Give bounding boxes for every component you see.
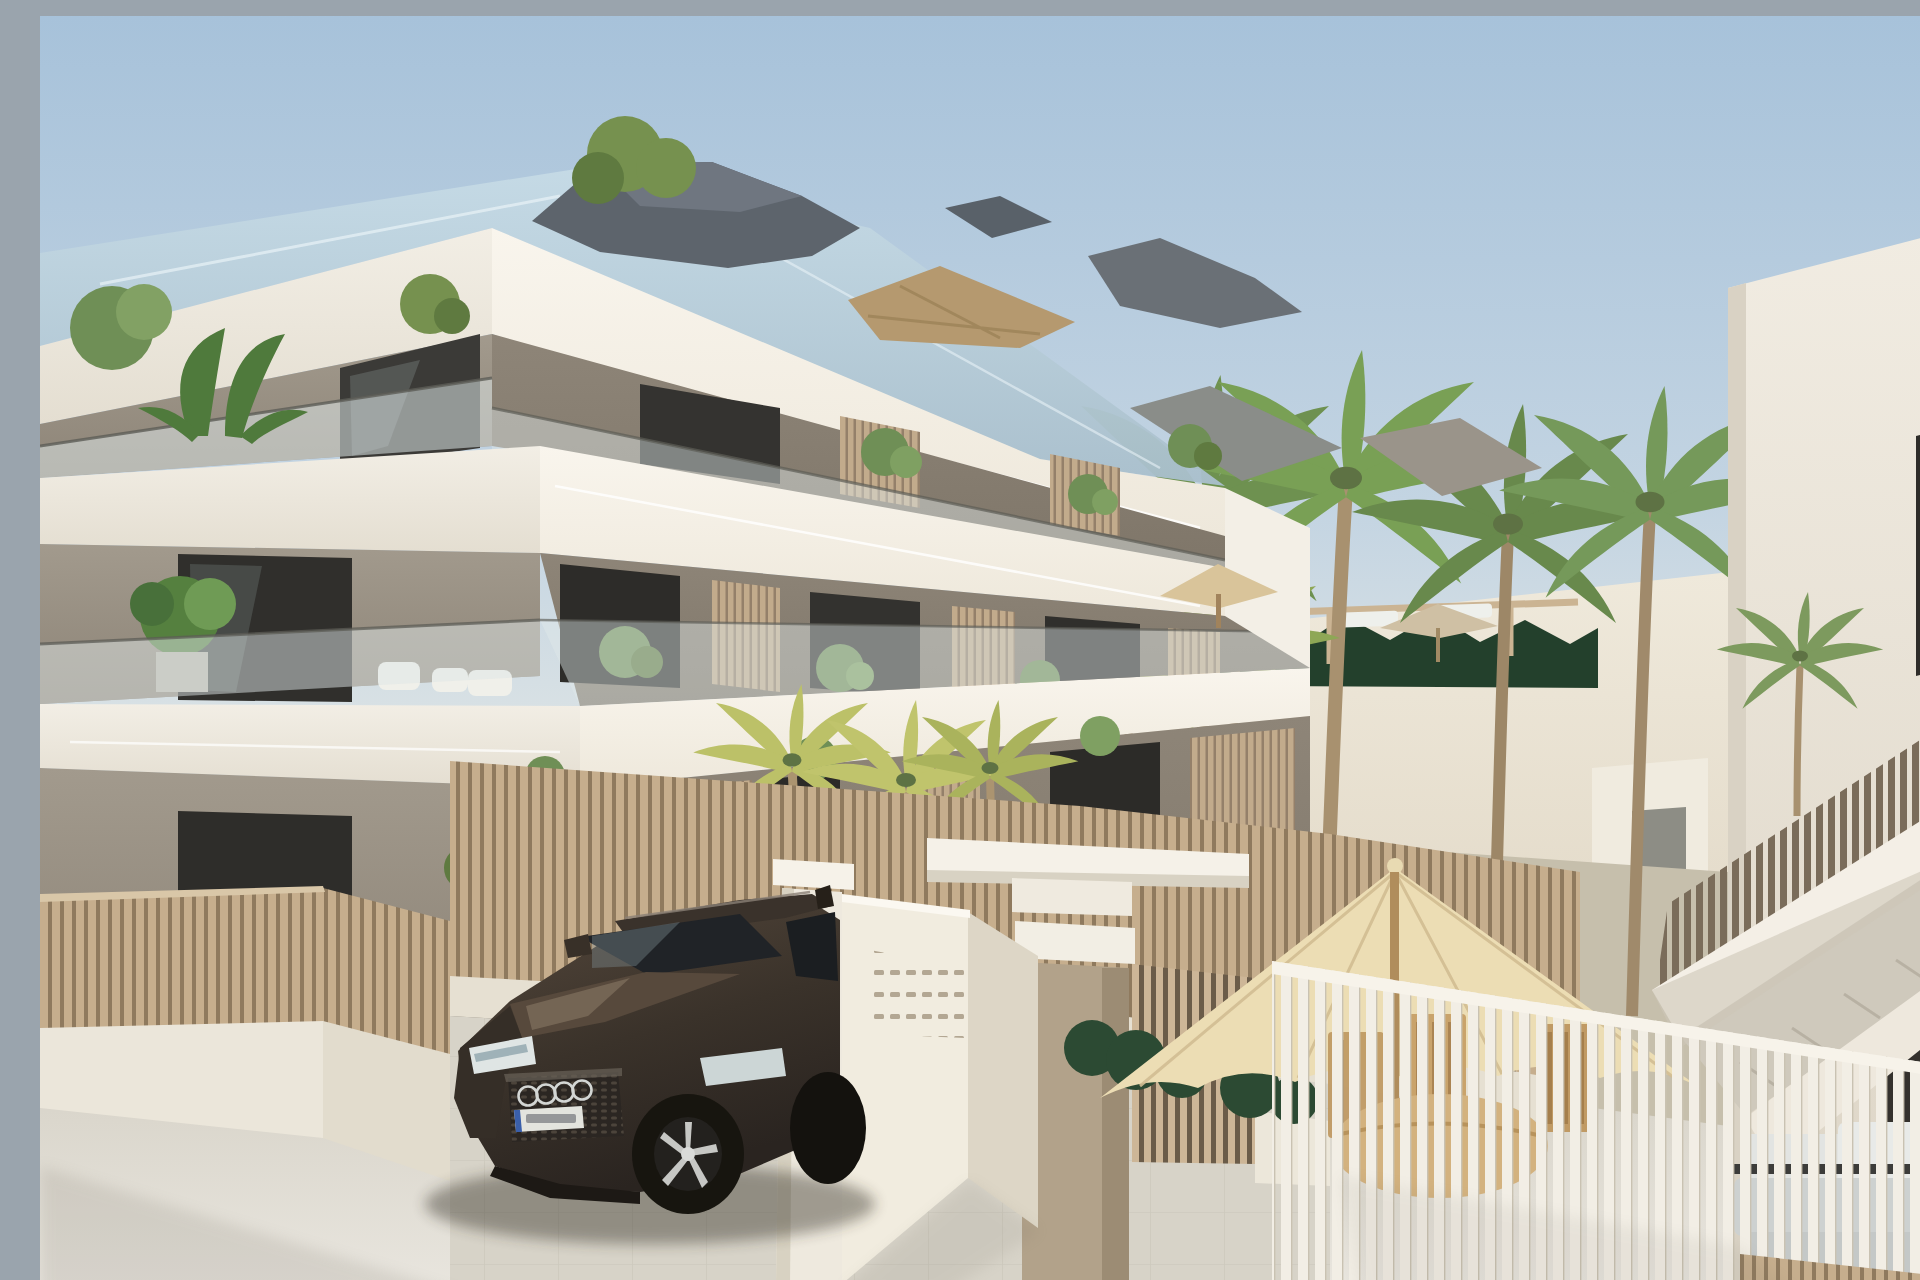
- right-building-window-upper: [1916, 424, 1920, 676]
- architectural-render-image: [40, 16, 1920, 1280]
- car-front-wheel: [632, 1094, 744, 1214]
- gate-pillar-cap: [773, 859, 854, 890]
- render-canvas: [40, 16, 1920, 1280]
- license-plate: [514, 1106, 584, 1132]
